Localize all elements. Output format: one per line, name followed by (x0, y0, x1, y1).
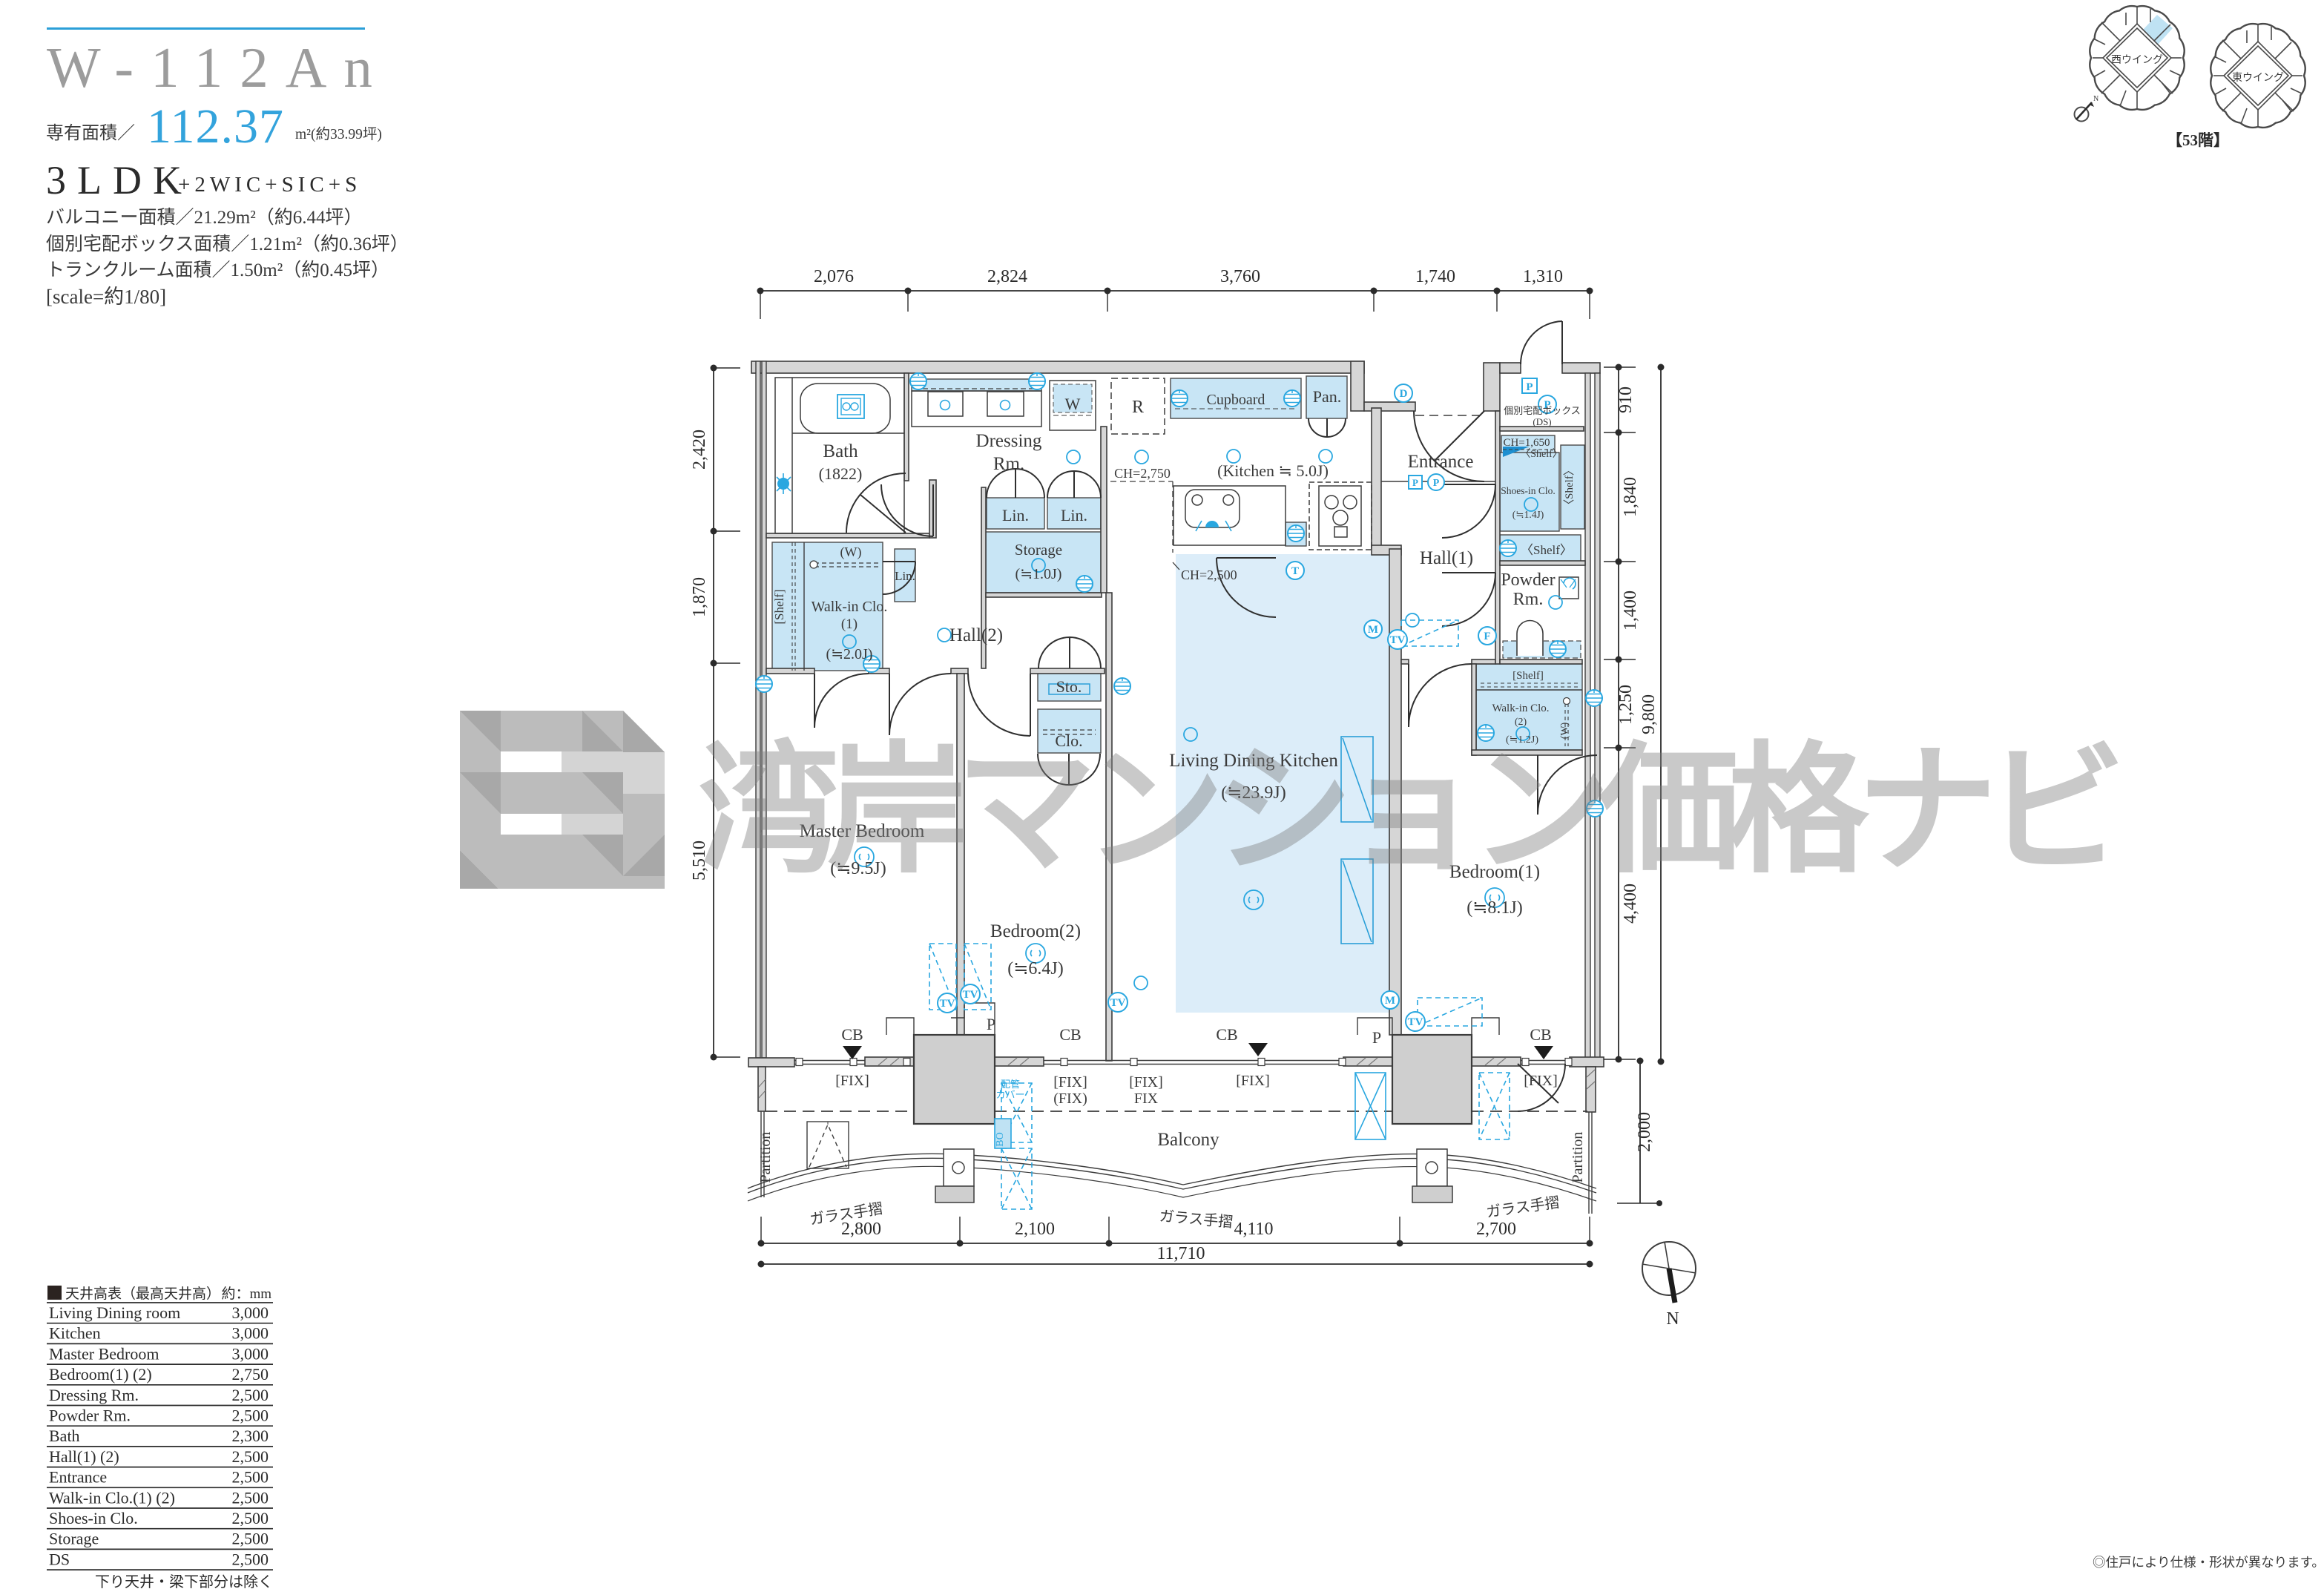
svg-text:TV: TV (1390, 634, 1406, 646)
svg-text:TV: TV (1110, 997, 1126, 1009)
svg-text:Dressing Rm.: Dressing Rm. (49, 1386, 139, 1404)
svg-text:Walk-in Clo.: Walk-in Clo. (812, 599, 888, 615)
svg-text:〈Shelf〉: 〈Shelf〉 (1520, 448, 1563, 460)
svg-text:Walk-in Clo.(1) (2): Walk-in Clo.(1) (2) (49, 1488, 175, 1507)
svg-text:11,710: 11,710 (1156, 1244, 1205, 1263)
svg-text:9,800: 9,800 (1639, 694, 1659, 734)
svg-text:(DS): (DS) (1533, 416, 1551, 427)
svg-text:910: 910 (1616, 386, 1636, 413)
svg-text:〈Shelf〉: 〈Shelf〉 (1521, 543, 1573, 557)
svg-text:CB: CB (1530, 1025, 1551, 1044)
svg-text:(1822): (1822) (819, 464, 863, 483)
svg-text:1,740: 1,740 (1415, 267, 1455, 286)
svg-text:(1): (1) (841, 616, 857, 632)
svg-text:Living Dining room: Living Dining room (49, 1303, 180, 1322)
svg-text:P: P (1412, 477, 1418, 488)
svg-text:2,500: 2,500 (232, 1447, 269, 1466)
svg-text:BO: BO (995, 1132, 1006, 1146)
svg-text:[Shelf]: [Shelf] (772, 589, 786, 624)
svg-text:4,400: 4,400 (1621, 884, 1640, 924)
svg-text:Lin.: Lin. (1061, 506, 1087, 524)
svg-text:Bedroom(1) (2): Bedroom(1) (2) (49, 1365, 152, 1384)
svg-text:TV: TV (963, 989, 978, 1001)
svg-text:◎住戸により仕様・形状が異なります。: ◎住戸により仕様・形状が異なります。 (2093, 1555, 2324, 1570)
svg-text:(≒8.1J): (≒8.1J) (1467, 898, 1522, 918)
svg-text:Rm.: Rm. (993, 454, 1024, 474)
svg-text:4,110: 4,110 (1234, 1220, 1273, 1239)
svg-text:[FIX]: [FIX] (1129, 1074, 1163, 1090)
svg-text:Powder: Powder (1501, 570, 1555, 590)
svg-text:[Shelf]: [Shelf] (1512, 670, 1544, 682)
svg-text:Dressing: Dressing (976, 431, 1042, 451)
svg-text:3,000: 3,000 (232, 1324, 269, 1343)
svg-text:CH=1,650: CH=1,650 (1503, 437, 1550, 449)
svg-text:P: P (1372, 1028, 1381, 1047)
svg-text:Bath: Bath (823, 441, 858, 461)
svg-text:m²(約33.99坪): m²(約33.99坪) (295, 126, 382, 142)
svg-text:2,500: 2,500 (232, 1386, 269, 1404)
svg-text:(2): (2) (1515, 717, 1527, 728)
svg-text:W: W (1065, 395, 1081, 413)
svg-text:2,300: 2,300 (232, 1427, 269, 1445)
svg-text:2,500: 2,500 (232, 1530, 269, 1548)
svg-text:1,250: 1,250 (1616, 685, 1636, 725)
svg-text:F: F (1484, 631, 1490, 642)
svg-text:Bath: Bath (49, 1427, 80, 1445)
svg-text:カバー: カバー (995, 1089, 1024, 1100)
svg-text:[FIX]: [FIX] (1236, 1073, 1270, 1089)
svg-text:1,870: 1,870 (690, 577, 709, 617)
svg-text:1,840: 1,840 (1621, 477, 1640, 517)
svg-text:Entrance: Entrance (1408, 452, 1474, 472)
svg-text:Pan.: Pan. (1313, 387, 1342, 406)
svg-text:3,760: 3,760 (1220, 267, 1260, 286)
svg-text:N: N (1666, 1309, 1679, 1329)
svg-text:専有面積／: 専有面積／ (46, 123, 135, 143)
svg-text:Hall(1) (2): Hall(1) (2) (49, 1447, 119, 1466)
svg-text:[FIX]: [FIX] (1524, 1073, 1558, 1089)
svg-text:2,800: 2,800 (841, 1220, 881, 1239)
svg-text:Rm.: Rm. (1513, 590, 1544, 609)
svg-text:Storage: Storage (49, 1530, 99, 1548)
svg-text:T: T (1291, 565, 1299, 577)
svg-text:TV: TV (1408, 1016, 1423, 1028)
svg-text:2,500: 2,500 (232, 1509, 269, 1527)
svg-text:2,700: 2,700 (1476, 1220, 1516, 1239)
svg-text:1,310: 1,310 (1523, 267, 1563, 286)
svg-text:3,000: 3,000 (232, 1344, 269, 1363)
svg-text:(Kitchen ≒ 5.0J): (Kitchen ≒ 5.0J) (1217, 461, 1329, 480)
svg-text:(≒1.4J): (≒1.4J) (1512, 509, 1544, 520)
svg-text:(FIX): (FIX) (1053, 1090, 1087, 1107)
svg-text:約：mm: 約：mm (221, 1286, 271, 1302)
svg-text:個別宅配ボックス: 個別宅配ボックス (1504, 405, 1581, 416)
svg-text:2,420: 2,420 (690, 430, 709, 470)
svg-text:Storage: Storage (1015, 541, 1062, 559)
svg-text:バルコニー面積／21.29m²（約6.44坪）: バルコニー面積／21.29m²（約6.44坪） (46, 207, 362, 228)
svg-text:M: M (1368, 624, 1378, 636)
svg-text:〈Shelf〉: 〈Shelf〉 (1563, 464, 1576, 510)
svg-text:個別宅配ボックス面積／1.21m²（約0.36坪）: 個別宅配ボックス面積／1.21m²（約0.36坪） (46, 234, 409, 254)
svg-text:(W): (W) (840, 545, 862, 560)
svg-text:2,500: 2,500 (232, 1407, 269, 1425)
svg-text:Master Bedroom: Master Bedroom (49, 1344, 159, 1363)
svg-text:Powder Rm.: Powder Rm. (49, 1407, 131, 1425)
svg-text:D: D (1400, 388, 1408, 400)
svg-text:Kitchen: Kitchen (49, 1324, 101, 1343)
svg-text:2,076: 2,076 (814, 267, 854, 286)
svg-text:Cupboard: Cupboard (1207, 392, 1265, 408)
svg-text:[FIX]: [FIX] (1053, 1074, 1087, 1090)
svg-text:FIX: FIX (1134, 1090, 1159, 1107)
svg-text:CB: CB (1059, 1025, 1081, 1044)
svg-text:1,400: 1,400 (1621, 590, 1640, 631)
svg-text:TV: TV (940, 998, 955, 1010)
svg-text:[FIX]: [FIX] (835, 1073, 869, 1089)
svg-text:2,000: 2,000 (1635, 1112, 1654, 1152)
svg-text:東ウイング: 東ウイング (2232, 72, 2284, 84)
svg-text:+2WIC+SIC+S: +2WIC+SIC+S (178, 173, 361, 197)
svg-text:(≒2.0J): (≒2.0J) (826, 646, 873, 662)
svg-text:配管: 配管 (1001, 1079, 1020, 1090)
svg-text:3LDK: 3LDK (46, 158, 193, 203)
svg-text:Entrance: Entrance (49, 1468, 107, 1487)
svg-text:2,824: 2,824 (987, 267, 1027, 286)
svg-text:Shoes-in Clo.: Shoes-in Clo. (1501, 485, 1556, 496)
svg-text:下り天井・梁下部分は除く: 下り天井・梁下部分は除く (95, 1573, 273, 1589)
svg-text:Sto.: Sto. (1056, 677, 1082, 696)
svg-text:Walk-in Clo.: Walk-in Clo. (1492, 703, 1549, 714)
svg-text:天井高表（最高天井高）: 天井高表（最高天井高） (65, 1286, 220, 1302)
svg-text:(≒6.4J): (≒6.4J) (1007, 959, 1063, 978)
svg-text:Lin.: Lin. (895, 569, 915, 583)
svg-text:2,500: 2,500 (232, 1468, 269, 1487)
svg-text:(≒1.0J): (≒1.0J) (1015, 566, 1062, 582)
svg-text:CB: CB (841, 1025, 863, 1044)
svg-text:Hall(1): Hall(1) (1420, 548, 1473, 568)
svg-text:DS: DS (49, 1550, 70, 1568)
svg-text:西ウイング: 西ウイング (2111, 54, 2163, 66)
svg-text:Shoes-in Clo.: Shoes-in Clo. (49, 1509, 138, 1527)
svg-text:M: M (1385, 995, 1395, 1007)
svg-text:P: P (987, 1015, 995, 1033)
svg-text:2,500: 2,500 (232, 1550, 269, 1568)
svg-text:CH=2,500: CH=2,500 (1181, 567, 1237, 582)
svg-text:[scale=約1/80]: [scale=約1/80] (46, 286, 166, 308)
svg-text:N: N (2093, 95, 2098, 103)
svg-text:P: P (1526, 381, 1533, 393)
svg-text:Lin.: Lin. (1002, 506, 1029, 524)
svg-text:湾岸マンション価格ナビ: 湾岸マンション価格ナビ (698, 732, 2119, 889)
svg-text:2,500: 2,500 (232, 1488, 269, 1507)
svg-text:Bedroom(2): Bedroom(2) (990, 921, 1081, 941)
svg-text:Partition: Partition (757, 1132, 774, 1183)
svg-text:W-112An: W-112An (47, 36, 389, 99)
svg-text:R: R (1132, 398, 1144, 417)
svg-text:3,000: 3,000 (232, 1303, 269, 1322)
svg-text:2,100: 2,100 (1015, 1220, 1055, 1239)
svg-text:2,750: 2,750 (232, 1365, 269, 1384)
svg-text:CB: CB (1216, 1025, 1237, 1044)
svg-text:CH=2,750: CH=2,750 (1114, 466, 1171, 481)
svg-text:P: P (1433, 478, 1440, 489)
svg-text:112.37: 112.37 (147, 99, 284, 154)
svg-text:Hall(2): Hall(2) (949, 625, 1003, 645)
svg-text:Partition: Partition (1570, 1132, 1586, 1183)
svg-text:トランクルーム面積／1.50m²（約0.45坪）: トランクルーム面積／1.50m²（約0.45坪） (46, 260, 389, 280)
svg-text:【53階】: 【53階】 (2167, 131, 2229, 149)
svg-text:Balcony: Balcony (1157, 1130, 1219, 1150)
